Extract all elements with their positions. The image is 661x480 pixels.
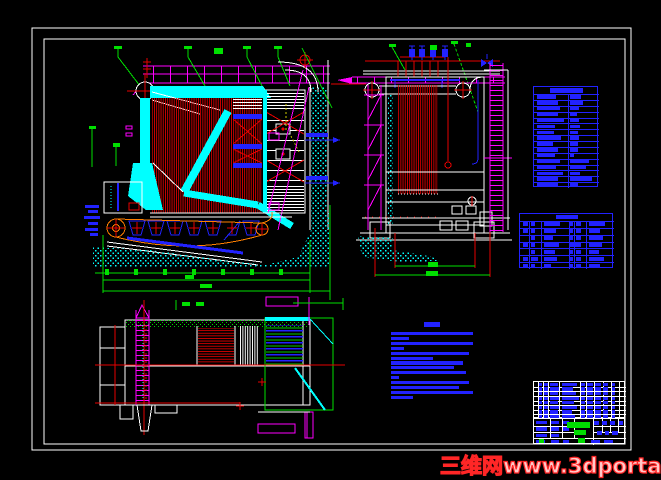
table-cell-text <box>523 257 528 261</box>
title-block[interactable] <box>533 418 625 444</box>
notes-line-text <box>391 357 433 360</box>
table-cell-text <box>595 401 601 404</box>
table-cell-text <box>531 222 536 226</box>
table-cell-text <box>544 229 556 233</box>
spec-table[interactable] <box>533 86 598 187</box>
table-cell-text <box>581 406 585 409</box>
table-cell-text <box>612 406 616 409</box>
table-cell-text <box>537 107 560 110</box>
side-view[interactable] <box>84 46 332 300</box>
table-cell-text <box>537 113 558 116</box>
table-cell-text <box>595 387 601 390</box>
table-cell-text <box>587 397 593 400</box>
table-cell-text <box>562 406 578 409</box>
table-cell-text <box>570 107 579 110</box>
table-cell-text <box>587 387 593 390</box>
table-cell-text <box>589 257 604 261</box>
table-cell-text <box>619 421 624 425</box>
table-cell-text <box>570 119 579 122</box>
table-cell-text <box>570 113 577 116</box>
table-cell-text <box>603 387 608 390</box>
table-cell-text <box>544 397 548 400</box>
table-cell-text <box>612 387 616 390</box>
table-cell-text <box>589 243 602 247</box>
table-cell-text <box>570 95 581 98</box>
table-cell-text <box>591 440 600 444</box>
table-cell-text <box>537 131 554 134</box>
table-cell-text <box>570 183 577 186</box>
table-cell-text <box>568 94 569 188</box>
table-cell-text <box>587 392 593 395</box>
table-cell-text <box>551 434 559 438</box>
table-cell-text <box>589 250 599 254</box>
table-cell-text <box>567 422 590 428</box>
table-cell-text <box>603 401 608 404</box>
table-cell-text <box>562 387 573 390</box>
table-cell-text <box>612 397 616 400</box>
table-cell-text <box>581 397 585 400</box>
table-cell-text <box>570 166 586 169</box>
table-cell-text <box>570 264 573 268</box>
table-cell-text <box>531 243 536 247</box>
table-cell-text <box>550 392 558 395</box>
table-cell-text <box>570 222 573 226</box>
table-cell-text <box>562 397 579 400</box>
table-cell-text <box>544 383 548 386</box>
table-cell-text <box>603 410 608 413</box>
table-cell-text <box>603 383 608 386</box>
table-cell-text <box>544 236 553 240</box>
table-cell-text <box>581 383 585 386</box>
table-cell-text <box>539 439 544 443</box>
table-cell-text <box>589 222 605 226</box>
table-cell-text <box>589 236 603 240</box>
table-cell-text <box>550 406 559 409</box>
table-cell-text <box>523 264 528 268</box>
notes-line-text <box>391 396 413 399</box>
notes-line-text <box>391 386 459 389</box>
table-cell-text <box>570 236 573 240</box>
table-cell-text <box>570 131 577 134</box>
notes-line-text <box>391 347 404 350</box>
table-cell-text <box>570 125 580 128</box>
table-cell-text <box>536 434 547 438</box>
table-cell-text <box>551 421 559 425</box>
table-cell-text <box>587 401 593 404</box>
table-cell-text <box>562 410 572 413</box>
table-cell-text <box>544 401 548 404</box>
notes-line-text <box>391 337 409 340</box>
table-cell-text <box>539 397 542 400</box>
table-cell-text <box>587 410 593 413</box>
notes-line-text <box>391 352 469 355</box>
table-cell-text <box>550 88 583 93</box>
table-cell-text <box>603 397 608 400</box>
table-cell-text <box>570 172 580 175</box>
table-cell-text <box>537 148 558 151</box>
plan-view[interactable] <box>95 297 345 438</box>
table-cell-text <box>550 387 559 390</box>
table-cell-text <box>587 406 593 409</box>
notes-line-text <box>391 366 454 369</box>
table-cell-text <box>570 243 581 247</box>
table-cell-text <box>544 257 557 261</box>
cad-drawing-sheet: 三维网www.3dportal.cn <box>0 0 661 480</box>
parts-list[interactable] <box>533 381 625 418</box>
table-cell-text <box>605 431 610 435</box>
table-cell-text <box>612 401 616 404</box>
table-cell-text <box>537 183 558 186</box>
notes-line-text <box>391 361 463 364</box>
table-cell-text <box>556 215 579 219</box>
table-cell-text <box>612 383 616 386</box>
table-cell-text <box>537 125 555 128</box>
table-cell-text <box>537 119 564 122</box>
table-cell-text <box>581 392 585 395</box>
table-cell-text <box>570 154 574 157</box>
table-cell-text <box>570 229 573 233</box>
table-cell-text <box>586 221 587 269</box>
table-cell-text <box>595 397 601 400</box>
table-cell-text <box>541 221 542 269</box>
table-cell-text <box>576 257 581 261</box>
table-cell-text <box>539 392 542 395</box>
table-cell-text <box>550 383 558 386</box>
table-cell-text <box>612 410 616 413</box>
table-cell-text <box>544 264 552 268</box>
table-cell-text <box>531 257 539 261</box>
table-cell-text <box>523 222 528 226</box>
table-cell-text <box>595 392 601 395</box>
table-cell-text <box>595 410 601 413</box>
watermark: 三维网www.3dportal.cn <box>440 450 661 480</box>
table-cell-text <box>550 410 558 413</box>
table-cell-text <box>537 101 558 104</box>
table-cell-text <box>539 406 542 409</box>
table-cell-text <box>570 257 573 261</box>
notes-line-text <box>391 376 399 379</box>
table-cell-text <box>612 392 616 395</box>
table-cell-text <box>574 430 586 435</box>
table-cell-text <box>581 401 585 404</box>
table-cell-text <box>523 243 528 247</box>
table-cell-text <box>576 222 581 226</box>
table-cell-text <box>562 401 574 404</box>
table-cell-text <box>551 427 559 431</box>
table-cell-text <box>578 438 585 443</box>
table-cell-text <box>603 392 608 395</box>
table-cell-text <box>576 264 581 268</box>
table-cell-text <box>531 264 536 268</box>
table-cell-text <box>551 440 559 444</box>
table-cell-text <box>581 410 585 413</box>
table-cell-text <box>539 387 542 390</box>
table-cell-text <box>570 177 591 180</box>
table-cell-text <box>563 427 569 431</box>
table-cell-text <box>537 177 558 180</box>
table-cell-text <box>539 410 542 413</box>
table-cell-text <box>536 421 547 425</box>
table-cell-text <box>576 250 581 254</box>
table-cell-text <box>531 236 536 240</box>
table-cell-text <box>562 392 577 395</box>
table-cell-text <box>597 431 602 435</box>
table-cell-text <box>587 383 593 386</box>
notes-line-text <box>391 332 473 335</box>
table-cell-text <box>544 222 561 226</box>
table-cell-text <box>570 142 578 145</box>
table-cell-text <box>576 236 581 240</box>
table-cell-text <box>537 160 560 163</box>
table-cell-text <box>563 440 569 444</box>
table-cell-text <box>595 406 601 409</box>
table-cell-text <box>589 229 600 233</box>
table-cell-text <box>570 101 583 104</box>
notes-title-text <box>424 322 440 327</box>
table-cell-text <box>619 382 620 419</box>
table-cell-text <box>537 154 555 157</box>
table-cell-text <box>581 387 585 390</box>
table-cell-text <box>603 406 608 409</box>
table-cell-text <box>595 383 601 386</box>
table-cell-text <box>537 136 561 139</box>
table-cell-text <box>544 392 548 395</box>
notes-line-text <box>391 371 466 374</box>
table-cell-text <box>544 410 548 413</box>
table-cell-text <box>570 250 573 254</box>
table-cell-text <box>537 142 553 145</box>
table-cell-text <box>550 401 558 404</box>
notes-line-text <box>391 342 473 345</box>
table-cell-text <box>531 229 536 233</box>
table-cell-text <box>539 383 542 386</box>
notes-line-text <box>391 381 469 384</box>
table-cell-text <box>539 401 542 404</box>
table-cell-text <box>531 250 536 254</box>
table-cell-text <box>576 229 581 233</box>
notes-line-text <box>391 391 473 394</box>
table-cell-text <box>589 264 600 268</box>
table-cell-text <box>570 160 588 163</box>
table-cell-text <box>537 166 557 169</box>
front-view[interactable] <box>305 41 512 277</box>
table-cell-text <box>544 406 548 409</box>
table-cell-text <box>562 383 578 386</box>
table-cell-text <box>537 95 557 98</box>
table-cell-text <box>570 148 578 151</box>
table-cell-text <box>537 172 563 175</box>
table-cell-text <box>594 421 599 425</box>
table-cell-text <box>610 421 615 425</box>
parts-mid-table[interactable] <box>519 213 613 268</box>
table-cell-text <box>602 421 607 425</box>
table-cell-text <box>544 243 559 247</box>
table-cell-text <box>523 229 528 233</box>
table-cell-text <box>559 382 560 419</box>
table-cell-text <box>529 221 530 269</box>
table-cell-text <box>570 136 579 139</box>
table-cell-text <box>536 427 547 431</box>
table-cell-text <box>550 397 559 400</box>
table-cell-text <box>544 387 548 390</box>
table-cell-text <box>612 431 618 435</box>
table-cell-text <box>604 440 613 444</box>
table-cell-text <box>544 250 555 254</box>
